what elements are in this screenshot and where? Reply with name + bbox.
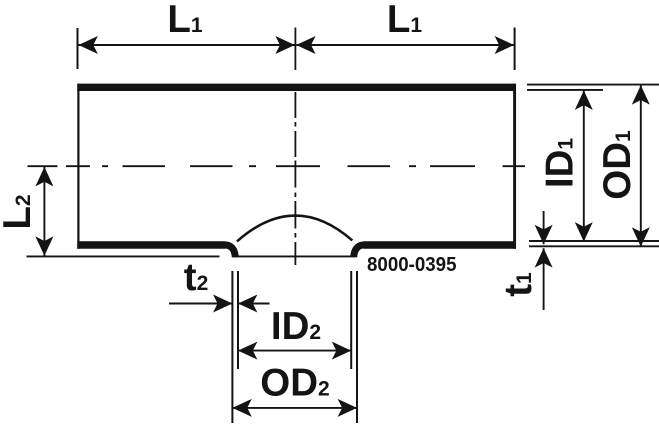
svg-text:8000-0395: 8000-0395 [367,254,457,276]
